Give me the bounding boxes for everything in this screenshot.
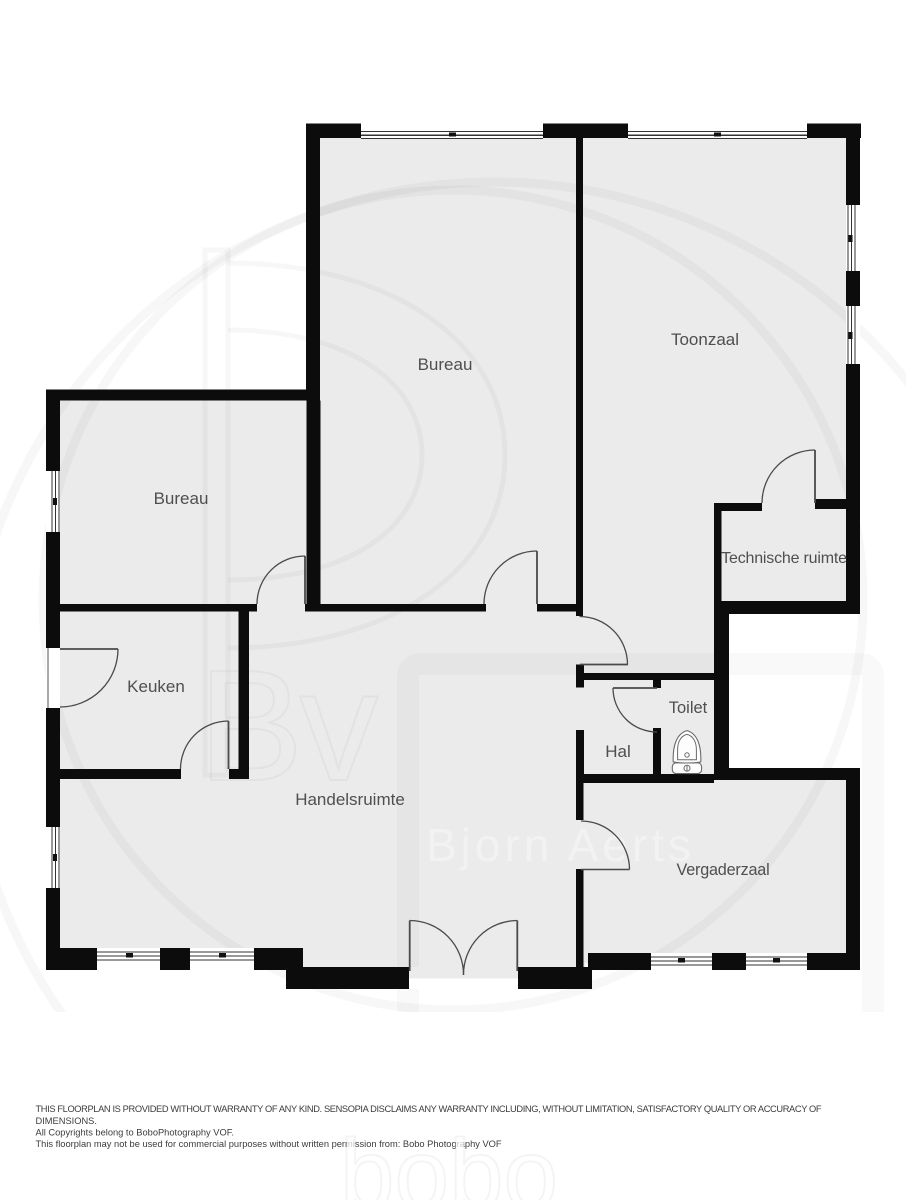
svg-text:Bureau: Bureau [418,355,473,374]
svg-text:Bv: Bv [198,638,378,814]
svg-text:Vergaderzaal: Vergaderzaal [677,861,770,879]
svg-text:DIMENSIONS.: DIMENSIONS. [36,1116,97,1126]
svg-text:Handelsruimte: Handelsruimte [295,790,405,809]
svg-text:Bureau: Bureau [154,489,209,508]
svg-text:Technische ruimte: Technische ruimte [721,550,847,567]
svg-text:Keuken: Keuken [127,677,185,696]
svg-text:Bjorn Aerts: Bjorn Aerts [426,819,695,871]
svg-text:Toilet: Toilet [669,699,708,717]
svg-text:Hal: Hal [605,742,631,761]
svg-text:THIS FLOORPLAN IS PROVIDED WIT: THIS FLOORPLAN IS PROVIDED WITHOUT WARRA… [36,1104,822,1114]
svg-text:Toonzaal: Toonzaal [671,330,739,349]
svg-text:All Copyrights belong to BoboP: All Copyrights belong to BoboPhotography… [36,1128,234,1138]
svg-text:bobo: bobo [340,1119,558,1200]
